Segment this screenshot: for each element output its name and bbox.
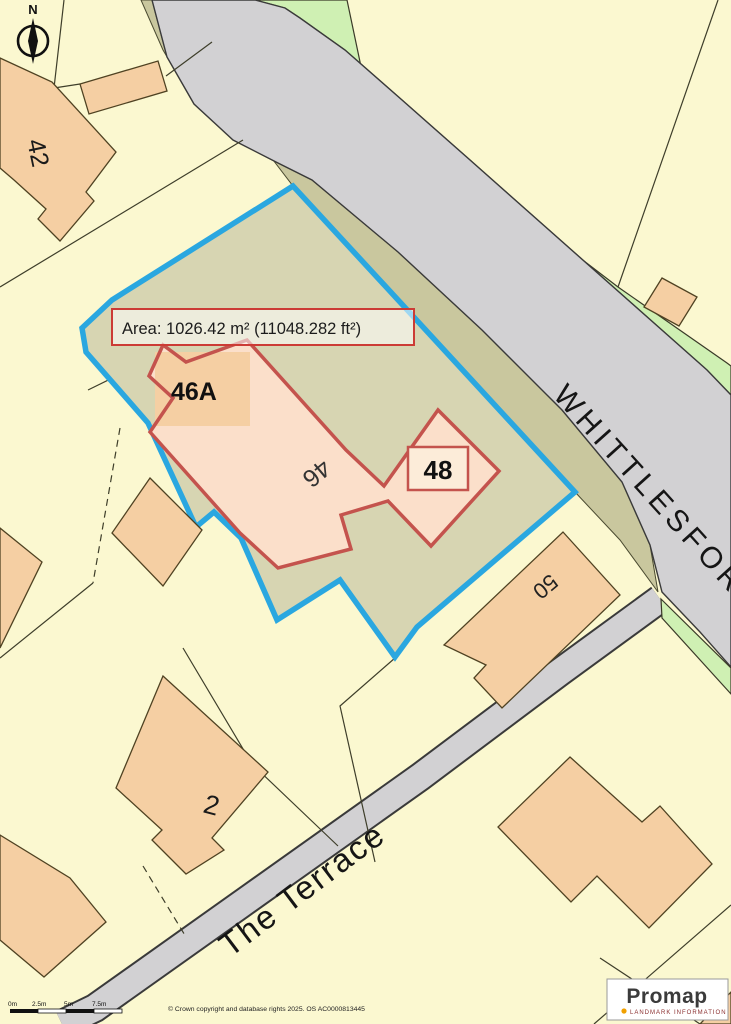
scale-segment — [10, 1009, 38, 1013]
site-plan-map: 42 46A 46 48 50 2 WHITTLESFORD The Terra… — [0, 0, 731, 1024]
scale-tick-label: 5m — [64, 1001, 73, 1008]
scale-tick-label: 2.5m — [32, 1001, 46, 1008]
area-annotation-text: Area: 1026.42 m² (11048.282 ft²) — [122, 320, 361, 338]
plot-label-46a: 46A — [171, 378, 217, 406]
scale-segment — [38, 1009, 66, 1013]
scale-tick-label: 7.5m — [92, 1001, 106, 1008]
scale-segment — [94, 1009, 122, 1013]
scale-segment — [66, 1009, 94, 1013]
promap-logo: Promap LANDMARK INFORMATION — [607, 979, 728, 1020]
promap-brand-text: Promap — [626, 985, 707, 1008]
plot-label-48: 48 — [424, 455, 453, 485]
plot-label-42: 42 — [21, 136, 54, 169]
copyright-text: © Crown copyright and database rights 20… — [168, 1005, 365, 1013]
landmark-dot-icon — [621, 1008, 626, 1013]
map-canvas: 42 46A 46 48 50 2 WHITTLESFORD The Terra… — [0, 0, 731, 1024]
scale-tick-label: 0m — [8, 1001, 17, 1008]
landmark-tagline-text: LANDMARK INFORMATION — [630, 1010, 727, 1016]
compass-north-label: N — [28, 2, 37, 17]
